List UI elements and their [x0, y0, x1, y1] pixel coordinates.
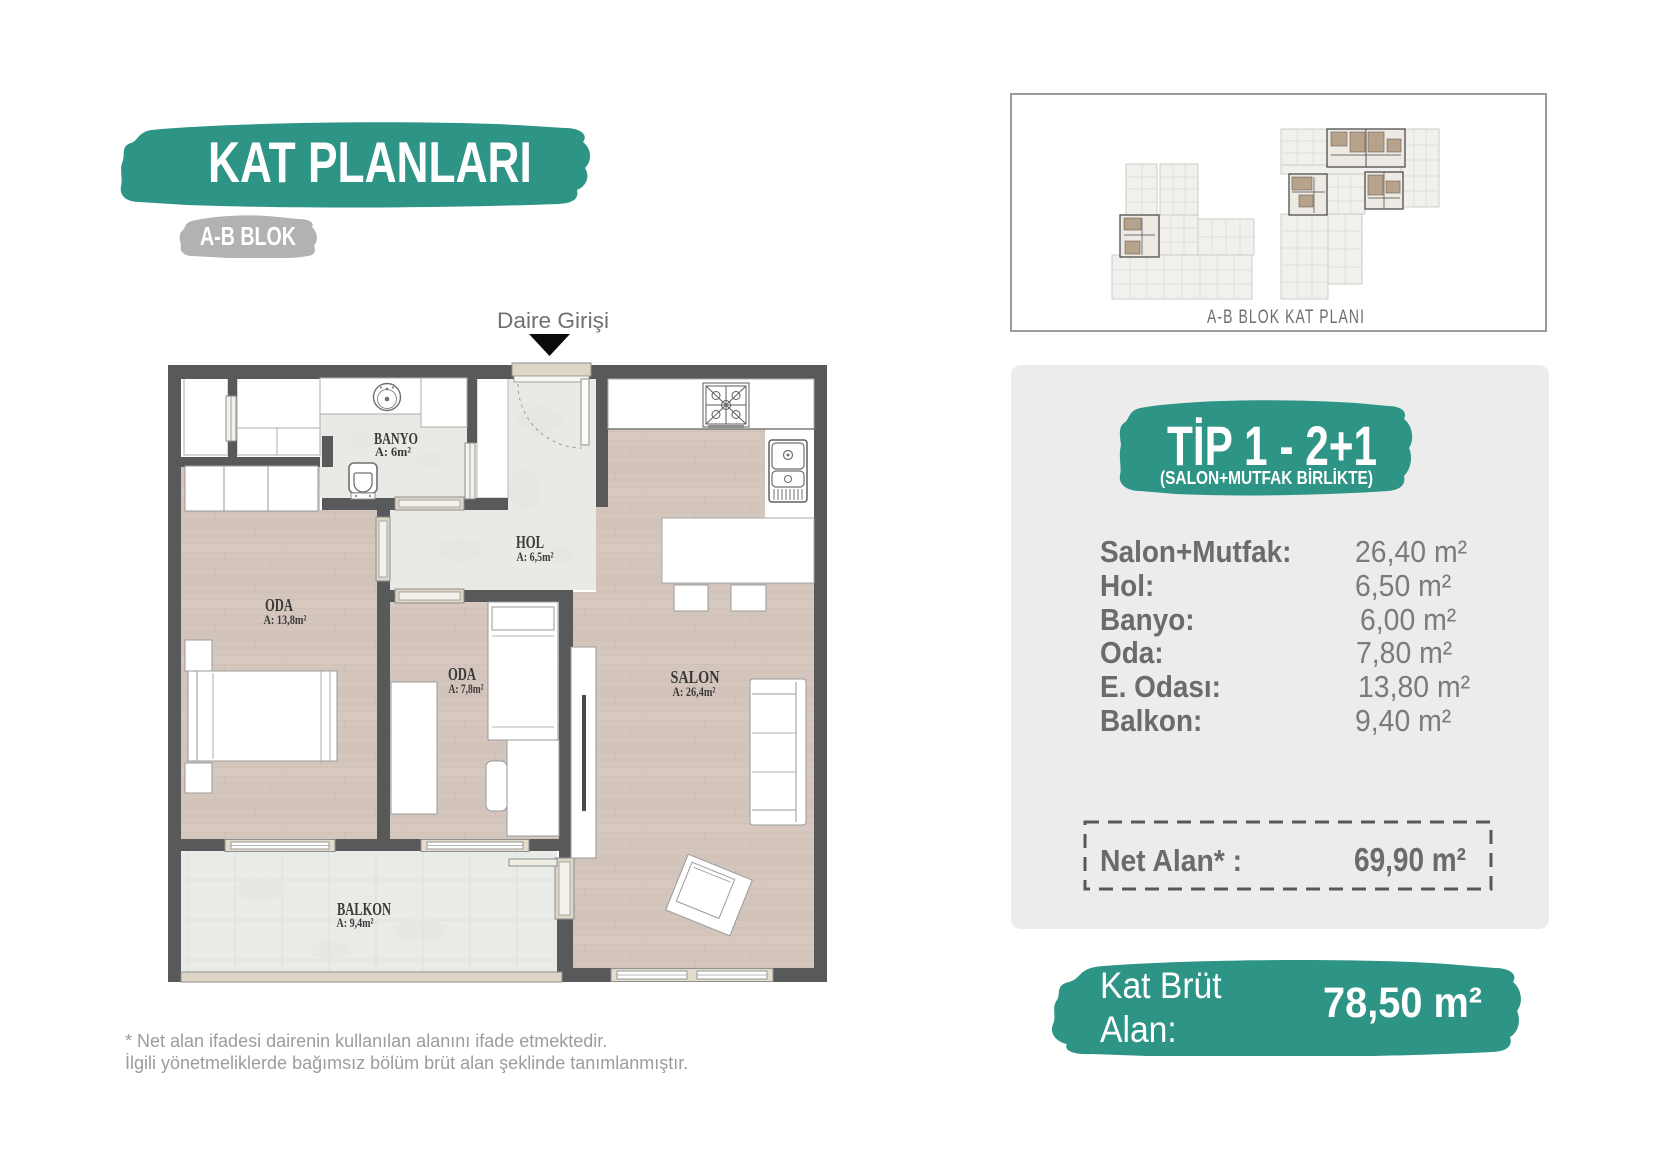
svg-text:A: 26,4m²: A: 26,4m²: [673, 684, 716, 699]
svg-text:A: 7,8m²: A: 7,8m²: [449, 681, 484, 696]
svg-text:A: 6m²: A: 6m²: [375, 444, 411, 459]
svg-text:A: 13,8m²: A: 13,8m²: [264, 612, 307, 627]
svg-text:Daire Girişi: Daire Girişi: [497, 308, 609, 333]
svg-text:A: 9,4m²: A: 9,4m²: [337, 915, 374, 930]
svg-text:A: 6,5m²: A: 6,5m²: [517, 549, 554, 564]
